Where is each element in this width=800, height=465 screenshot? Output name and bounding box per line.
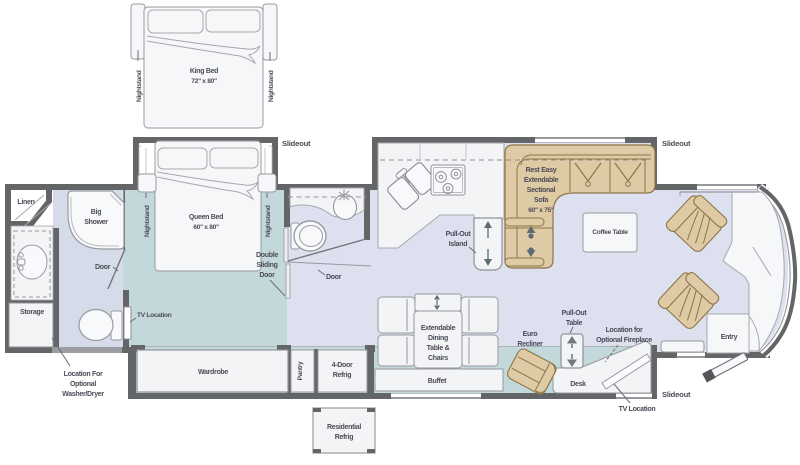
svg-text:Linen: Linen [17, 199, 34, 206]
svg-text:Nightstand: Nightstand [136, 70, 143, 102]
svg-text:Washer/Dryer: Washer/Dryer [62, 391, 104, 398]
svg-text:Sectional: Sectional [527, 187, 556, 194]
svg-text:Extendable: Extendable [421, 325, 456, 332]
svg-text:Coffee Table: Coffee Table [592, 229, 628, 236]
svg-text:Table: Table [566, 320, 583, 327]
svg-text:Wardrobe: Wardrobe [198, 369, 228, 376]
svg-text:Pull-Out: Pull-Out [446, 231, 472, 238]
svg-text:Nightstand: Nightstand [144, 205, 151, 237]
svg-text:Optional: Optional [70, 381, 96, 388]
svg-text:Nightstand: Nightstand [265, 205, 272, 237]
svg-text:Sofa: Sofa [534, 197, 548, 204]
svg-text:Refrig: Refrig [333, 372, 351, 379]
svg-text:Double: Double [256, 252, 278, 259]
svg-text:Location for: Location for [606, 327, 643, 334]
svg-text:Recliner: Recliner [517, 341, 543, 348]
svg-text:Storage: Storage [20, 309, 44, 316]
svg-text:Island: Island [449, 241, 467, 248]
svg-text:Nightstand: Nightstand [268, 70, 275, 102]
svg-text:Shower: Shower [84, 219, 108, 226]
svg-text:TV Location: TV Location [137, 312, 172, 319]
svg-text:Buffet: Buffet [428, 378, 447, 385]
svg-text:Residential: Residential [327, 424, 361, 431]
svg-text:72" x 80": 72" x 80" [191, 78, 217, 85]
svg-text:Door: Door [259, 272, 275, 279]
svg-text:Entry: Entry [721, 334, 738, 341]
svg-text:Slideout: Slideout [662, 390, 691, 399]
svg-text:Queen Bed: Queen Bed [189, 214, 223, 221]
svg-text:Rest Easy: Rest Easy [526, 167, 557, 174]
svg-text:Door: Door [326, 274, 342, 281]
svg-text:Refrig: Refrig [335, 434, 353, 441]
svg-text:Slideout: Slideout [662, 139, 691, 148]
svg-text:Extendable: Extendable [524, 177, 559, 184]
svg-text:Door: Door [95, 264, 111, 271]
svg-text:60" x 75": 60" x 75" [528, 207, 554, 214]
svg-text:60" x 80": 60" x 80" [193, 224, 219, 231]
svg-text:Location For: Location For [64, 371, 103, 378]
svg-text:Sliding: Sliding [256, 262, 277, 269]
svg-text:Optional Fireplace: Optional Fireplace [596, 337, 652, 344]
svg-text:Dining: Dining [428, 335, 448, 342]
svg-text:4-Door: 4-Door [332, 362, 353, 369]
svg-text:Pantry: Pantry [297, 361, 304, 380]
svg-text:Chairs: Chairs [428, 355, 448, 362]
svg-text:Euro: Euro [523, 331, 538, 338]
svg-text:King Bed: King Bed [190, 68, 218, 75]
svg-text:Big: Big [91, 209, 101, 216]
svg-text:Table &: Table & [427, 345, 450, 352]
svg-text:Slideout: Slideout [282, 139, 311, 148]
svg-text:Pull-Out: Pull-Out [562, 310, 588, 317]
svg-text:TV Location: TV Location [619, 406, 656, 413]
svg-text:Desk: Desk [570, 381, 586, 388]
